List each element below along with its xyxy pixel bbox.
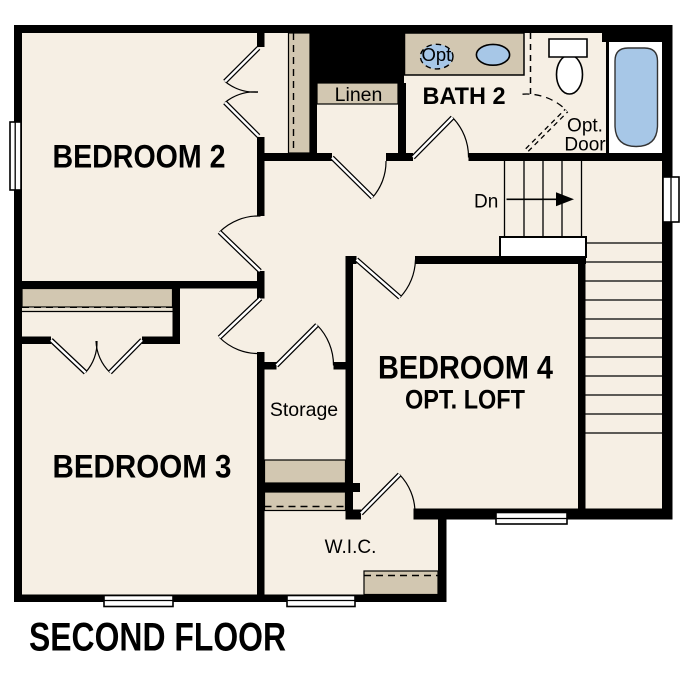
svg-text:Storage: Storage [270,399,338,421]
svg-text:BEDROOM 3: BEDROOM 3 [53,449,232,485]
svg-text:BEDROOM 2: BEDROOM 2 [53,139,226,175]
svg-text:Linen: Linen [335,84,383,106]
svg-text:BEDROOM 4: BEDROOM 4 [378,350,553,386]
svg-text:Opt: Opt [422,44,452,65]
svg-text:Door: Door [564,135,606,156]
svg-text:BATH 2: BATH 2 [423,83,506,110]
svg-text:Dn: Dn [474,192,498,213]
svg-text:Opt.: Opt. [567,116,603,137]
svg-text:OPT. LOFT: OPT. LOFT [405,385,525,415]
svg-text:SECOND FLOOR: SECOND FLOOR [29,616,286,660]
svg-text:W.I.C.: W.I.C. [325,537,377,558]
